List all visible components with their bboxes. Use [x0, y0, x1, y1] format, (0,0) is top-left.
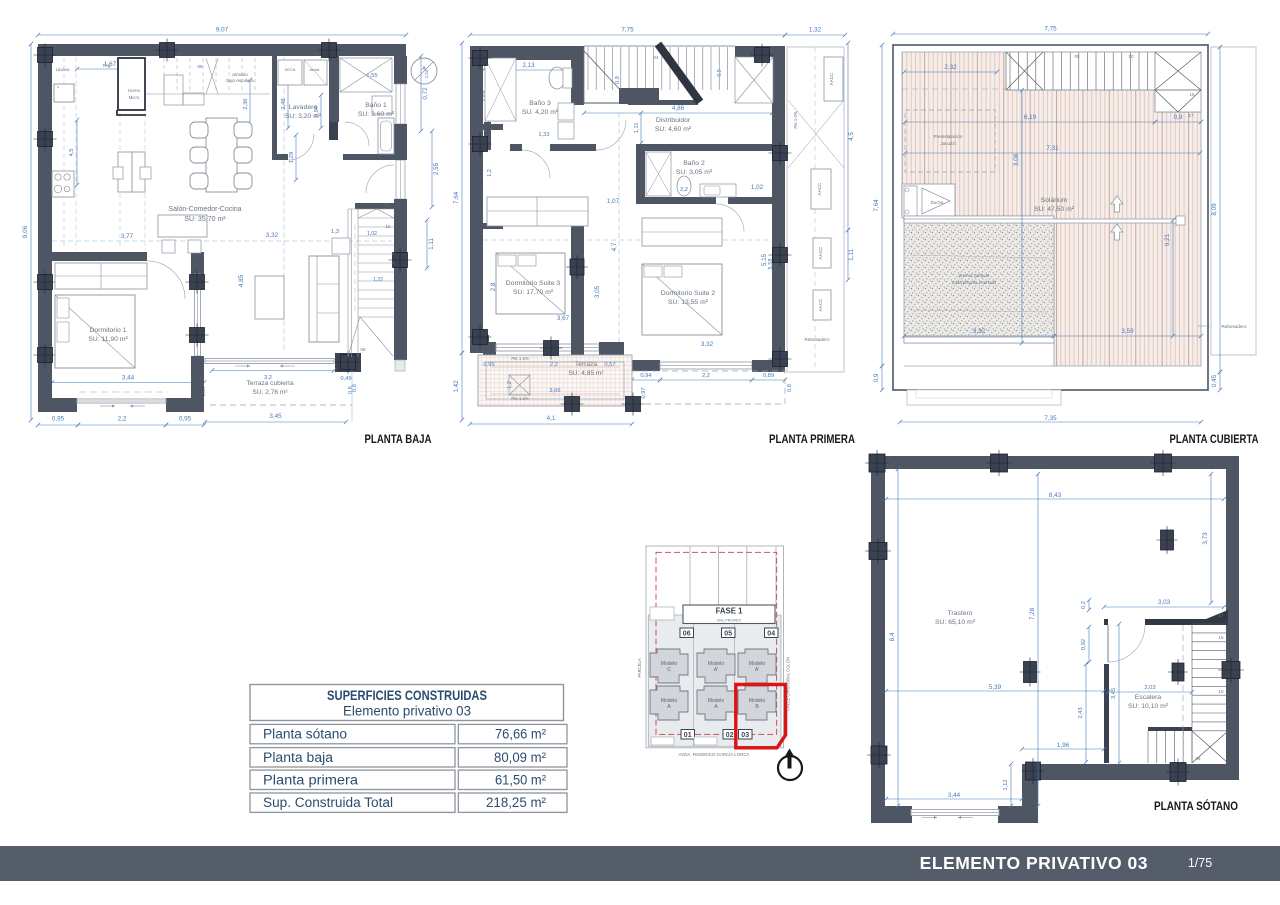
svg-text:Dormitorio Suite 2: Dormitorio Suite 2 — [661, 290, 716, 297]
svg-text:3,67: 3,67 — [557, 315, 570, 322]
svg-text:Rebosadero: Rebosadero — [804, 337, 829, 342]
svg-text:1,3: 1,3 — [331, 229, 339, 235]
svg-text:Elemento privativo 03: Elemento privativo 03 — [343, 704, 471, 719]
svg-text:1,11: 1,11 — [634, 123, 640, 134]
svg-text:Salón-Comedor-Cocina: Salón-Comedor-Cocina — [168, 206, 241, 213]
svg-text:SU: 2,76 m²: SU: 2,76 m² — [252, 389, 288, 396]
svg-text:PLANTA BAJA: PLANTA BAJA — [365, 434, 432, 446]
svg-text:1,2: 1,2 — [487, 169, 493, 177]
svg-text:8,43: 8,43 — [1049, 492, 1062, 499]
svg-text:1,96: 1,96 — [1057, 742, 1070, 749]
svg-text:15: 15 — [1219, 635, 1224, 640]
svg-text:4,85: 4,85 — [238, 274, 245, 287]
svg-text:06: 06 — [361, 347, 366, 352]
svg-text:SU: 3,60 m²: SU: 3,60 m² — [358, 111, 395, 118]
svg-text:0,95: 0,95 — [52, 416, 65, 423]
svg-text:Dormitorio Suite 3: Dormitorio Suite 3 — [506, 280, 561, 287]
svg-text:3,45: 3,45 — [1111, 688, 1117, 699]
svg-text:ELEMENTO PRIVATIVO 03: ELEMENTO PRIVATIVO 03 — [920, 853, 1148, 873]
svg-text:Sup. Construida Total: Sup. Construida Total — [263, 795, 393, 810]
svg-text:1,07: 1,07 — [607, 198, 620, 205]
svg-text:2,36: 2,36 — [243, 98, 249, 109]
svg-text:0,9: 0,9 — [1174, 114, 1183, 121]
svg-text:2,13: 2,13 — [522, 62, 535, 69]
svg-text:61,50 m²: 61,50 m² — [495, 772, 546, 787]
svg-text:lavad.: lavad. — [310, 67, 321, 72]
svg-text:5,15: 5,15 — [761, 253, 768, 266]
svg-text:2,2: 2,2 — [550, 362, 558, 368]
svg-text:SU: 65,10 m²: SU: 65,10 m² — [935, 619, 976, 626]
svg-text:SU: 17,70 m²: SU: 17,70 m² — [513, 289, 554, 296]
svg-text:Terraza cubierta: Terraza cubierta — [246, 380, 294, 387]
svg-text:1,02: 1,02 — [751, 184, 764, 191]
svg-text:1,02: 1,02 — [367, 231, 377, 237]
svg-text:bajo escalera: bajo escalera — [226, 78, 254, 83]
svg-text:6,21: 6,21 — [1164, 233, 1171, 246]
svg-text:Ducha: Ducha — [931, 200, 944, 205]
svg-text:Planta primera: Planta primera — [263, 772, 359, 787]
svg-text:Trastero: Trastero — [947, 610, 972, 617]
svg-text:4,1: 4,1 — [547, 415, 556, 422]
svg-text:Escalera: Escalera — [1135, 694, 1162, 701]
svg-text:04: 04 — [767, 631, 775, 638]
svg-text:Solárium: Solárium — [1041, 197, 1068, 204]
svg-text:10: 10 — [1219, 689, 1224, 694]
svg-text:3,08: 3,08 — [1013, 153, 1020, 166]
svg-text:1/75: 1/75 — [1188, 856, 1212, 870]
svg-text:8,09: 8,09 — [1211, 203, 1218, 216]
svg-text:Rebosadero: Rebosadero — [1221, 324, 1246, 329]
svg-text:2,32: 2,32 — [944, 64, 957, 71]
svg-text:7,75: 7,75 — [621, 27, 634, 34]
svg-text:A': A' — [714, 667, 718, 673]
svg-text:4,5: 4,5 — [848, 132, 855, 141]
svg-text:0,89: 0,89 — [763, 373, 774, 379]
svg-text:AACC: AACC — [818, 246, 823, 259]
svg-text:1,11: 1,11 — [428, 238, 435, 250]
svg-text:0,2: 0,2 — [1081, 601, 1087, 609]
svg-text:3,44: 3,44 — [948, 792, 961, 799]
svg-text:SU: 3,20 m²: SU: 3,20 m² — [285, 113, 322, 120]
svg-text:2,03: 2,03 — [1144, 685, 1155, 691]
svg-text:4,86: 4,86 — [672, 105, 685, 112]
svg-text:SU: 10,10 m²: SU: 10,10 m² — [1128, 703, 1169, 710]
svg-text:0,49: 0,49 — [340, 376, 351, 382]
svg-text:3,73: 3,73 — [1202, 532, 1209, 545]
svg-text:SU: 35,70 m²: SU: 35,70 m² — [184, 216, 226, 223]
svg-text:toldo/pérgola (manual): toldo/pérgola (manual) — [952, 280, 996, 285]
svg-text:armario: armario — [232, 72, 248, 77]
svg-text:PLANTA SÓTANO: PLANTA SÓTANO — [1154, 800, 1238, 813]
svg-text:4,5: 4,5 — [69, 148, 75, 156]
svg-text:1,33: 1,33 — [538, 132, 549, 138]
svg-text:04: 04 — [654, 55, 659, 60]
svg-text:08: 08 — [1196, 756, 1201, 761]
svg-text:2,43: 2,43 — [1078, 707, 1084, 718]
svg-text:Baño 3: Baño 3 — [529, 100, 551, 107]
svg-text:0,95: 0,95 — [179, 416, 192, 423]
svg-text:3,45: 3,45 — [269, 413, 282, 420]
svg-text:SU: 47,50 m²: SU: 47,50 m² — [1034, 206, 1075, 213]
svg-text:PARCELA: PARCELA — [637, 658, 642, 677]
svg-text:0,94: 0,94 — [640, 373, 652, 379]
svg-text:15: 15 — [386, 224, 391, 229]
svg-text:3,05: 3,05 — [594, 285, 601, 298]
svg-text:Pte 1-2%: Pte 1-2% — [793, 111, 798, 129]
svg-text:0,8: 0,8 — [352, 384, 358, 392]
svg-text:17: 17 — [1219, 613, 1224, 618]
svg-text:AACC: AACC — [829, 72, 834, 85]
svg-text:SECA: SECA — [285, 67, 296, 72]
svg-text:7,64: 7,64 — [873, 199, 880, 212]
svg-text:1,22: 1,22 — [373, 277, 383, 283]
svg-text:0,57: 0,57 — [604, 362, 615, 368]
svg-text:Dormitorio 1: Dormitorio 1 — [89, 327, 126, 334]
svg-text:Baño 2: Baño 2 — [683, 160, 705, 167]
svg-text:1,2: 1,2 — [507, 381, 513, 389]
svg-text:0,95: 0,95 — [483, 362, 494, 368]
svg-text:Pte 1-2%: Pte 1-2% — [511, 356, 529, 361]
svg-text:03: 03 — [741, 732, 749, 739]
svg-text:SU: 11,90 m²: SU: 11,90 m² — [88, 336, 128, 343]
svg-text:Lavadero: Lavadero — [289, 104, 318, 111]
svg-text:Baño 1: Baño 1 — [365, 102, 387, 109]
svg-text:SU: 4,60 m²: SU: 4,60 m² — [655, 126, 692, 133]
svg-text:9,07: 9,07 — [216, 27, 229, 34]
svg-text:AVDA. FEDERICO GARCÍA LORCA: AVDA. FEDERICO GARCÍA LORCA — [679, 752, 750, 757]
svg-text:8,4: 8,4 — [889, 632, 896, 641]
svg-text:0,72: 0,72 — [422, 87, 429, 100]
svg-text:Planta baja: Planta baja — [263, 750, 333, 765]
svg-text:7,64: 7,64 — [453, 191, 460, 204]
svg-text:76,66 m²: 76,66 m² — [495, 727, 546, 742]
svg-text:Lavava.: Lavava. — [56, 67, 71, 72]
svg-text:3,77: 3,77 — [121, 233, 134, 240]
svg-text:SU: 13,55 m²: SU: 13,55 m² — [668, 299, 709, 306]
svg-text:7,35: 7,35 — [1044, 415, 1057, 422]
svg-text:06: 06 — [683, 631, 691, 638]
svg-text:VIAL PRIVADO: VIAL PRIVADO — [717, 619, 742, 623]
svg-text:Terraza: Terraza — [575, 361, 597, 368]
svg-text:2,55: 2,55 — [433, 162, 440, 175]
svg-text:4,7: 4,7 — [611, 242, 618, 251]
svg-text:1,42: 1,42 — [453, 380, 460, 393]
svg-text:05: 05 — [197, 64, 203, 69]
svg-text:7,28: 7,28 — [1029, 607, 1036, 620]
svg-text:1,29: 1,29 — [289, 152, 295, 163]
svg-text:15: 15 — [1190, 92, 1195, 97]
svg-text:9,06: 9,06 — [22, 225, 29, 238]
svg-text:A': A' — [755, 667, 759, 673]
svg-text:7,31: 7,31 — [1046, 145, 1059, 152]
svg-text:01: 01 — [684, 732, 692, 739]
svg-text:5,39: 5,39 — [989, 684, 1002, 691]
svg-text:Planta sótano: Planta sótano — [263, 727, 347, 742]
svg-text:1,32: 1,32 — [809, 27, 822, 34]
svg-text:C: C — [667, 667, 671, 673]
svg-text:PLANTA CUBIERTA: PLANTA CUBIERTA — [1170, 434, 1259, 446]
svg-text:Pte 1-2%: Pte 1-2% — [511, 396, 529, 401]
svg-text:3,32: 3,32 — [266, 232, 279, 239]
svg-text:3,66: 3,66 — [549, 388, 560, 394]
svg-text:Frig.: Frig. — [103, 63, 111, 68]
svg-text:FASE 1: FASE 1 — [716, 607, 744, 616]
svg-text:17: 17 — [385, 202, 390, 207]
svg-text:218,25 m²: 218,25 m² — [486, 795, 546, 810]
svg-text:AACC: AACC — [817, 182, 822, 195]
svg-text:Distribuidor: Distribuidor — [656, 117, 691, 124]
svg-text:0,9: 0,9 — [615, 76, 621, 84]
svg-text:3,32: 3,32 — [973, 328, 986, 335]
svg-text:17: 17 — [1189, 113, 1194, 118]
svg-text:Horno: Horno — [128, 88, 141, 93]
svg-text:10: 10 — [1129, 54, 1134, 59]
svg-text:SU: 3,05 m²: SU: 3,05 m² — [676, 169, 713, 176]
svg-text:2,48: 2,48 — [281, 98, 287, 109]
svg-text:1,53: 1,53 — [424, 69, 429, 78]
svg-text:02: 02 — [726, 732, 734, 739]
svg-text:6,19: 6,19 — [1024, 114, 1037, 121]
svg-text:2,2: 2,2 — [118, 416, 127, 423]
svg-text:0,9: 0,9 — [873, 373, 880, 382]
svg-text:Micro: Micro — [129, 95, 140, 100]
svg-text:3,32: 3,32 — [701, 341, 714, 348]
svg-text:Jacuzzi: Jacuzzi — [940, 141, 955, 146]
svg-text:PLANTA PRIMERA: PLANTA PRIMERA — [769, 434, 855, 446]
svg-text:3,03: 3,03 — [1158, 599, 1171, 606]
svg-text:SU: 4,85 m²: SU: 4,85 m² — [568, 370, 604, 377]
svg-text:05: 05 — [724, 631, 732, 638]
svg-text:CALLE CRISTÓBAL COLÓN: CALLE CRISTÓBAL COLÓN — [786, 657, 791, 711]
svg-text:0,9: 0,9 — [717, 69, 723, 76]
svg-text:SU: 4,20 m²: SU: 4,20 m² — [522, 109, 559, 116]
svg-text:0,92: 0,92 — [1081, 639, 1087, 650]
svg-text:80,09 m²: 80,09 m² — [494, 750, 546, 765]
svg-text:2,2: 2,2 — [702, 373, 710, 379]
svg-text:0,8: 0,8 — [787, 384, 793, 392]
svg-text:1,11: 1,11 — [848, 249, 855, 261]
svg-text:1,12: 1,12 — [1003, 779, 1009, 790]
svg-text:SUPERFICIES CONSTRUIDAS: SUPERFICIES CONSTRUIDAS — [327, 687, 487, 703]
svg-text:3,59: 3,59 — [1121, 328, 1134, 335]
svg-text:3,44: 3,44 — [122, 375, 135, 382]
svg-text:7,75: 7,75 — [1044, 26, 1057, 33]
svg-text:AACC: AACC — [818, 298, 823, 311]
svg-text:2,2: 2,2 — [680, 187, 688, 193]
svg-text:0,45: 0,45 — [1211, 374, 1218, 387]
svg-text:05: 05 — [1075, 54, 1080, 59]
svg-text:preinst. pérgola: preinst. pérgola — [959, 273, 990, 278]
svg-text:Preinstalación: Preinstalación — [934, 134, 963, 139]
svg-text:0,97: 0,97 — [641, 388, 647, 399]
